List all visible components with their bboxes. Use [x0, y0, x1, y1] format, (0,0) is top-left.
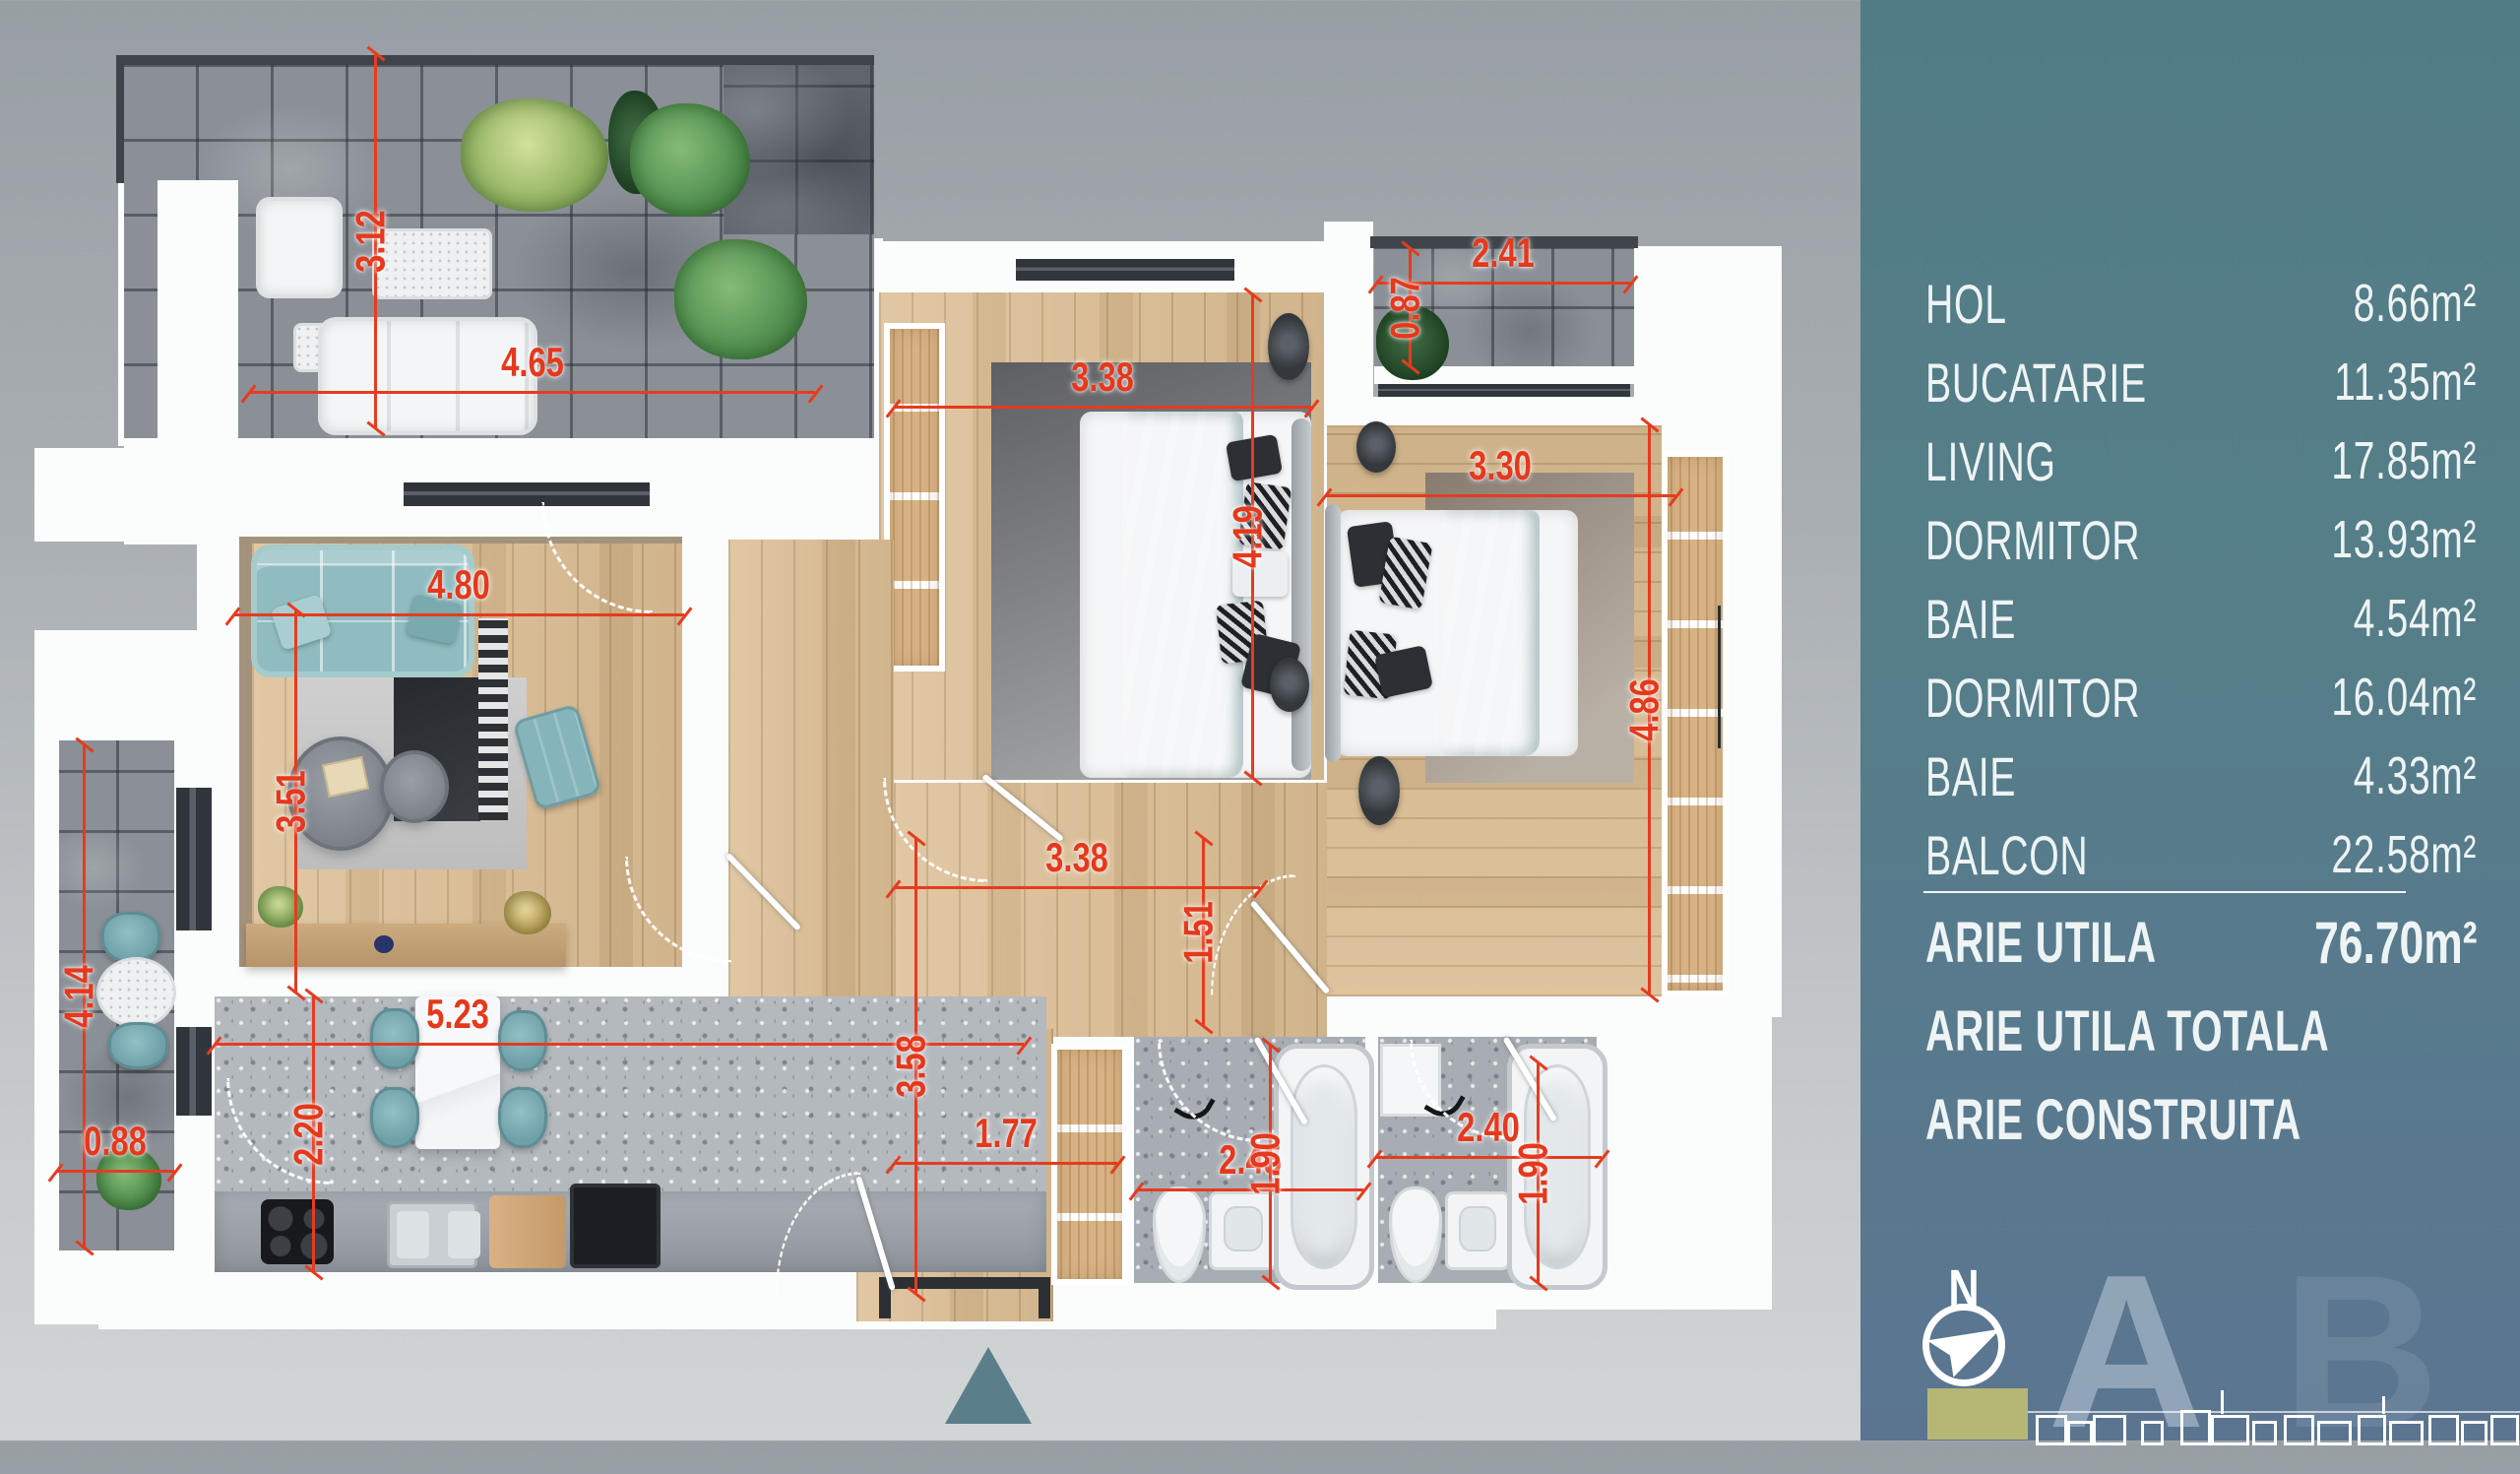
- key-plan-unit: [2317, 1421, 2352, 1445]
- compass: N: [1915, 1258, 2023, 1377]
- key-plan-unit: [2490, 1415, 2519, 1445]
- room-label: DORMITOR: [1925, 666, 2140, 730]
- bistro-chair: [101, 912, 160, 963]
- dim-label: 2.20: [284, 1103, 332, 1166]
- dim-label: 3.51: [267, 770, 314, 833]
- bath1-tub-basin: [1291, 1064, 1357, 1269]
- total-label: ARIE UTILA: [1925, 910, 2157, 976]
- entrance-arrow: [945, 1347, 1032, 1424]
- bedroom2-stool: [1358, 756, 1400, 825]
- dim-bedroom1-height: 4.19: [1251, 295, 1254, 778]
- kitchen-sink: [387, 1201, 477, 1268]
- total-area: 76.70m²: [2314, 909, 2477, 977]
- dim-bath2-width: 2.40: [1375, 1156, 1602, 1159]
- room-row: BAIE4.33m²: [1925, 737, 2477, 815]
- room-area: 16.04m²: [2331, 667, 2477, 728]
- total-row: ARIE UTILA TOTALA99.25m²: [1925, 987, 2477, 1075]
- total-label: ARIE UTILA TOTALA: [1925, 998, 2329, 1064]
- total-row: ARIE UTILA76.70m²: [1925, 898, 2477, 987]
- terrace-wall-column: [157, 180, 238, 446]
- dim-balcony-top-depth: 0.87: [1409, 249, 1412, 366]
- dim-label: 3.38: [1071, 353, 1134, 401]
- key-plan-unit: [2252, 1421, 2277, 1445]
- dim-label: 0.87: [1381, 277, 1428, 340]
- room-row: BAIE4.54m²: [1925, 579, 2477, 658]
- bedroom1-stool: [1270, 658, 1309, 712]
- living-rug-striped: [478, 618, 508, 820]
- bedroom1-window: [1016, 259, 1234, 281]
- key-plan-highlight: [1927, 1388, 2028, 1440]
- key-plan-unit: [2093, 1415, 2126, 1445]
- dim-label: 1.51: [1174, 901, 1222, 964]
- dim-terrace-height: 3.12: [374, 54, 377, 428]
- dim-terrace-width: 4.65: [249, 391, 815, 394]
- total-row: ARIE CONSTRUITA127.40m²: [1925, 1075, 2477, 1164]
- dim-label: 3.58: [887, 1035, 934, 1098]
- dining-chair: [498, 1087, 547, 1148]
- dim-label: 0.88: [84, 1118, 147, 1165]
- dim-label: 3.30: [1469, 442, 1532, 489]
- bedroom1-stool: [1268, 313, 1309, 380]
- dim-bedroom1-width: 3.38: [894, 406, 1311, 409]
- room-label: HOL: [1925, 272, 2007, 336]
- room-label: BUCATARIE: [1925, 351, 2147, 415]
- wall-mass: [1634, 246, 1782, 404]
- kitchen-appliance: [570, 1184, 661, 1268]
- bedroom1-headboard: [1291, 418, 1311, 771]
- bedroom1-blanket: [1120, 412, 1243, 778]
- dining-chair: [370, 1087, 419, 1148]
- dim-label: 1.77: [975, 1110, 1038, 1157]
- total-label: ARIE CONSTRUITA: [1925, 1087, 2301, 1153]
- key-plan-tick: [2221, 1390, 2224, 1414]
- room-area: 8.66m²: [2354, 273, 2477, 334]
- dim-label: 3.38: [1045, 834, 1108, 881]
- dim-label: 3.12: [346, 210, 394, 273]
- room-area: 11.35m²: [2334, 352, 2477, 413]
- dim-hall-height: 3.58: [914, 839, 917, 1294]
- dim-bedroom2-width: 3.30: [1325, 494, 1675, 497]
- bistro-table: [96, 957, 176, 1028]
- key-plan-line: [2008, 1411, 2520, 1413]
- room-label: BALCON: [1925, 823, 2088, 887]
- key-plan-unit: [2389, 1421, 2424, 1445]
- dim-balcony-left-width: 0.88: [56, 1170, 174, 1173]
- room-list: HOL8.66m² BUCATARIE11.35m² LIVING17.85m²…: [1925, 264, 2477, 894]
- room-label: DORMITOR: [1925, 508, 2140, 572]
- totals-list: ARIE UTILA76.70m² ARIE UTILA TOTALA99.25…: [1925, 898, 2477, 1164]
- bedroom2-blanket: [1439, 510, 1540, 756]
- key-plan-unit: [2141, 1421, 2164, 1445]
- dim-label: 4.19: [1224, 505, 1271, 568]
- room-row: HOL8.66m²: [1925, 264, 2477, 343]
- terrace-plant: [630, 103, 750, 217]
- room-row: DORMITOR13.93m²: [1925, 500, 2477, 579]
- room-label: BAIE: [1925, 744, 2016, 808]
- balcony-top-window: [1378, 384, 1630, 397]
- dim-label: 1.90: [1241, 1132, 1289, 1195]
- dim-label: 2.41: [1472, 229, 1535, 277]
- key-plan-tick: [2382, 1396, 2385, 1414]
- dim-hall-depth: 1.51: [1202, 839, 1205, 1026]
- bath2-sink: [1445, 1191, 1510, 1270]
- balcony-left-window: [176, 1027, 212, 1116]
- entrance-jamb: [1039, 1289, 1050, 1318]
- key-plan-unit: [2358, 1415, 2386, 1445]
- key-plan: [1860, 1378, 2520, 1441]
- dim-label: 4.80: [427, 561, 490, 609]
- terrace-plant: [674, 239, 807, 359]
- room-area: 17.85m²: [2331, 430, 2477, 491]
- room-area: 4.33m²: [2354, 745, 2477, 806]
- dim-kitchen-depth: 2.20: [312, 996, 315, 1272]
- dim-bath1-depth: 1.90: [1269, 1046, 1272, 1282]
- room-row: DORMITOR16.04m²: [1925, 658, 2477, 737]
- key-plan-unit: [2211, 1415, 2249, 1445]
- totals-divider: [1923, 891, 2406, 893]
- floor-plan: 3.12 4.65 2.41 0.87 3.38 4.19 4.80 3.51 …: [0, 0, 1860, 1441]
- bath1-sink: [1209, 1191, 1278, 1270]
- bedroom2-stool: [1356, 421, 1396, 473]
- dim-bath2-depth: 1.90: [1537, 1063, 1540, 1283]
- dim-hall-width: 3.38: [894, 886, 1260, 889]
- room-row: BUCATARIE11.35m²: [1925, 343, 2477, 421]
- terrace-wall-top: [116, 55, 874, 65]
- key-plan-unit: [2284, 1415, 2314, 1445]
- key-plan-unit: [2036, 1415, 2067, 1445]
- room-label: LIVING: [1925, 429, 2056, 493]
- dining-chair: [370, 1008, 419, 1069]
- dim-label: 4.65: [501, 339, 564, 386]
- wall-mass: [1324, 222, 1373, 404]
- key-plan-unit: [2461, 1421, 2488, 1445]
- room-area: 4.54m²: [2354, 588, 2477, 649]
- dim-label: 4.86: [1620, 678, 1668, 741]
- entrance-jamb: [879, 1289, 891, 1318]
- dining-chair: [498, 1010, 547, 1071]
- cutting-board: [489, 1195, 566, 1268]
- dim-living-height: 3.51: [294, 610, 297, 993]
- console-decor: [374, 935, 394, 953]
- key-plan-unit: [2067, 1421, 2093, 1445]
- cooktop: [261, 1199, 334, 1264]
- hall-corridor-floor: [728, 540, 894, 996]
- dim-label: 1.90: [1509, 1142, 1556, 1205]
- dim-label: 5.23: [426, 991, 489, 1038]
- dim-bedroom2-height: 4.86: [1648, 425, 1651, 994]
- info-sidebar: HOL8.66m² BUCATARIE11.35m² LIVING17.85m²…: [1860, 0, 2520, 1441]
- balcony-left-window: [176, 788, 212, 930]
- terrace-wall-left: [116, 55, 124, 183]
- room-row: BALCON22.58m²: [1925, 815, 2477, 894]
- compass-needle-icon: [1922, 1304, 2005, 1386]
- terrace-plant: [461, 98, 608, 212]
- key-plan-unit: [2428, 1415, 2459, 1445]
- bedroom2-wardrobe-handle: [1718, 606, 1721, 748]
- coffee-table-small: [380, 750, 449, 823]
- room-area: 13.93m²: [2331, 509, 2477, 570]
- bedroom2-headboard: [1325, 504, 1341, 762]
- terrace-armchair: [256, 197, 343, 298]
- dim-label: 4.14: [55, 965, 102, 1028]
- dim-hall-entry-width: 1.77: [894, 1162, 1117, 1165]
- entrance-threshold: [879, 1277, 1050, 1289]
- console-flowers: [504, 891, 551, 934]
- bistro-chair: [108, 1022, 168, 1069]
- room-label: BAIE: [1925, 587, 2016, 651]
- room-area: 22.58m²: [2331, 824, 2477, 885]
- room-row: LIVING17.85m²: [1925, 421, 2477, 500]
